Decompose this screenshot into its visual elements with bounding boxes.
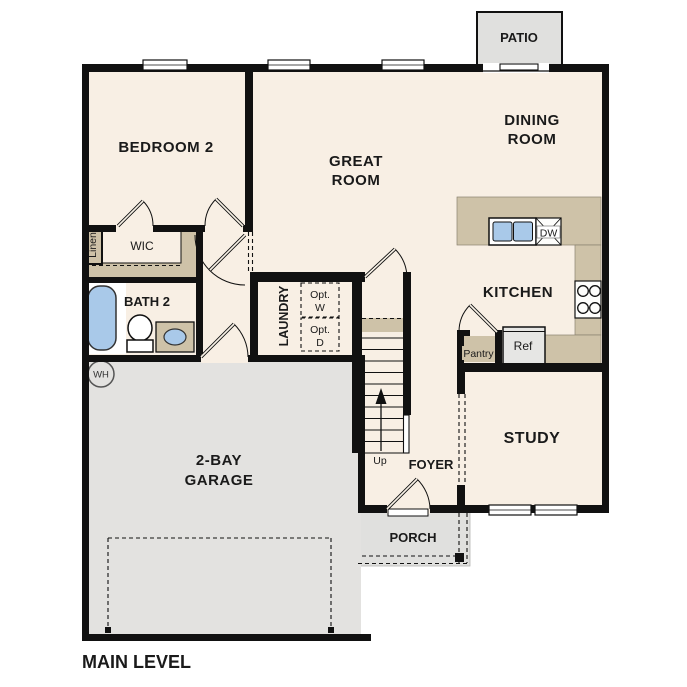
toilet-tank: [127, 340, 153, 352]
wall-laundry-left: [250, 277, 258, 362]
wall-pantry-right: [495, 330, 502, 363]
label-porch: PORCH: [390, 530, 437, 545]
label-opt-d-1: Opt.: [310, 324, 330, 336]
wall-bath-top: [82, 277, 203, 283]
label-patio: PATIO: [500, 30, 538, 45]
wall-bath-right: [196, 277, 203, 362]
label-opt-d-2: D: [316, 337, 324, 349]
label-main-level: MAIN LEVEL: [82, 652, 191, 672]
label-garage-2: GARAGE: [185, 472, 254, 489]
patio-slider-panel: [500, 64, 538, 70]
label-dining-2: ROOM: [508, 131, 557, 148]
label-bath2: BATH 2: [124, 294, 170, 309]
label-garage-1: 2-BAY: [196, 452, 242, 469]
label-wic: WIC: [130, 239, 154, 253]
label-pantry: Pantry: [463, 348, 494, 360]
garage-floor: [89, 358, 361, 635]
floor-plan-canvas: BEDROOM 2 GREAT ROOM DINING ROOM KITCHEN…: [0, 0, 687, 687]
label-dw: DW: [540, 228, 558, 240]
bathtub: [88, 286, 116, 350]
sink-basin-right: [514, 222, 533, 241]
label-great-2: ROOM: [332, 172, 381, 189]
wall-garage-bottom: [82, 634, 371, 641]
label-dining-1: DINING: [504, 112, 560, 129]
floor-plan: BEDROOM 2 GREAT ROOM DINING ROOM KITCHEN…: [0, 0, 687, 687]
label-up: Up: [373, 455, 387, 467]
wall-stair-right: [403, 272, 411, 415]
wall-laundry-top: [250, 272, 365, 282]
wall-kitchen-study: [457, 363, 609, 372]
label-wh: WH: [93, 370, 109, 381]
wall-study-left-upper: [457, 372, 465, 394]
label-great-1: GREAT: [329, 153, 383, 170]
kitchen-counter-bottom: [545, 335, 601, 365]
label-opt-w-1: Opt.: [310, 289, 330, 301]
sink-basin-left: [493, 222, 512, 241]
vanity-sink: [164, 329, 186, 345]
wall-left: [82, 64, 89, 641]
front-door-sill: [388, 509, 428, 516]
wall-study-left-lower: [457, 485, 465, 513]
label-foyer: FOYER: [409, 457, 454, 472]
wall-stair-left: [352, 272, 362, 453]
opening-garage-door: [201, 354, 248, 363]
label-opt-w-2: W: [315, 302, 325, 314]
label-kitchen: KITCHEN: [483, 284, 553, 301]
stair-landing: [362, 318, 403, 332]
stair-railing: [404, 415, 410, 453]
label-ref: Ref: [514, 339, 533, 353]
wall-wic-right: [196, 225, 203, 283]
wall-bedroom-right: [245, 64, 253, 232]
label-bedroom2: BEDROOM 2: [118, 139, 213, 156]
toilet: [128, 315, 152, 341]
opening-hall-door: [205, 224, 243, 233]
label-linen: Linen: [87, 232, 99, 258]
label-study: STUDY: [504, 430, 561, 447]
label-laundry: LAUNDRY: [277, 285, 291, 346]
wall-right: [602, 64, 609, 513]
opening-bedroom-door: [116, 224, 153, 233]
